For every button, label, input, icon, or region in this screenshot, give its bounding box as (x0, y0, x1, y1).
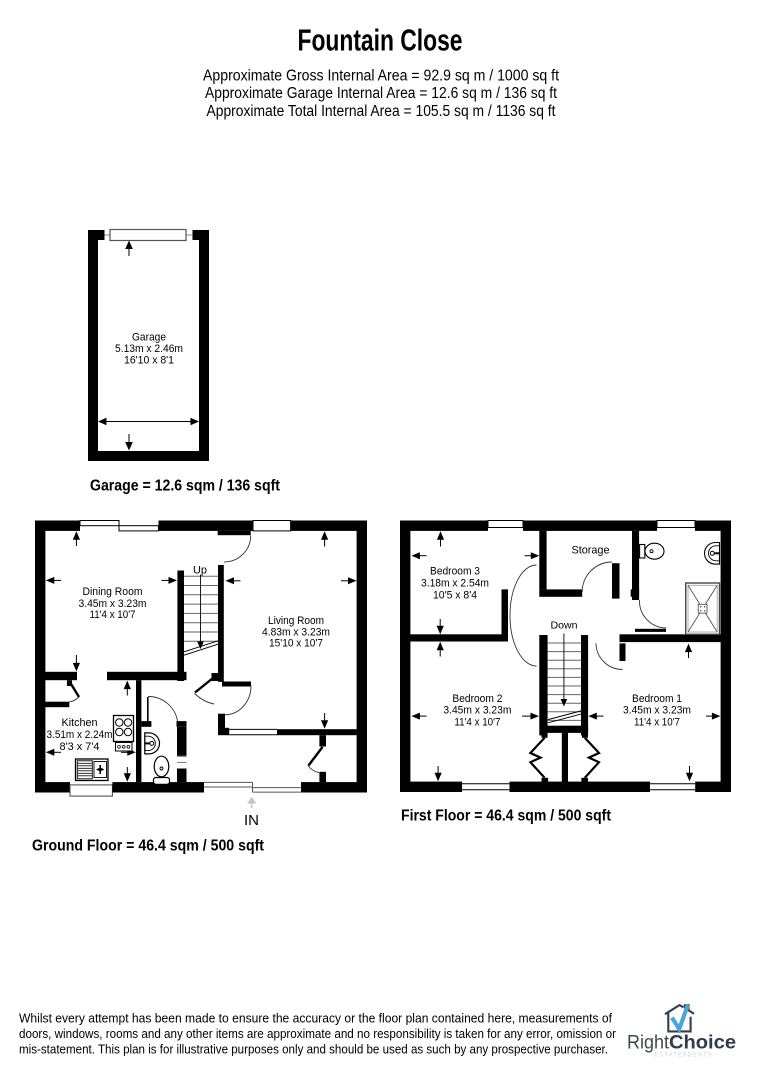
svg-text:Approximate Total Internal Are: Approximate Total Internal Area = 105.5 … (207, 103, 557, 120)
svg-text:IN: IN (244, 812, 259, 829)
svg-text:Kitchen: Kitchen (62, 717, 98, 729)
svg-text:Bedroom 3: Bedroom 3 (430, 566, 480, 578)
svg-text:3.45m x 3.23m: 3.45m x 3.23m (443, 705, 511, 717)
svg-text:Approximate Gross Internal Are: Approximate Gross Internal Area = 92.9 s… (203, 67, 560, 84)
svg-text:11'4 x 10'7: 11'4 x 10'7 (454, 716, 500, 728)
svg-text:Approximate Garage Internal Ar: Approximate Garage Internal Area = 12.6 … (205, 85, 558, 102)
svg-text:8'3 x 7'4: 8'3 x 7'4 (60, 741, 100, 753)
svg-text:Down: Down (551, 620, 578, 632)
svg-text:Dining Room: Dining Room (83, 586, 143, 598)
svg-text:First Floor = 46.4 sqm / 500 s: First Floor = 46.4 sqm / 500 sqft (401, 807, 611, 824)
svg-text:Ground Floor = 46.4 sqm / 500: Ground Floor = 46.4 sqm / 500 sqft (32, 837, 264, 854)
svg-text:Up: Up (193, 565, 207, 577)
svg-text:Whilst every attempt has been: Whilst every attempt has been made to en… (19, 1011, 612, 1026)
svg-text:Storage: Storage (572, 545, 610, 557)
svg-text:RightChoice: RightChoice (627, 1032, 736, 1054)
svg-text:10'5 x 8'4: 10'5 x 8'4 (433, 590, 477, 602)
svg-text:3.45m x 3.23m: 3.45m x 3.23m (623, 705, 691, 717)
svg-text:3.18m x 2.54m: 3.18m x 2.54m (421, 578, 489, 590)
svg-text:11'4 x 10'7: 11'4 x 10'7 (90, 609, 136, 621)
svg-text:11'4 x 10'7: 11'4 x 10'7 (634, 716, 680, 728)
svg-text:Fountain Close: Fountain Close (298, 23, 463, 58)
svg-text:15'10 x 10'7: 15'10 x 10'7 (269, 638, 323, 650)
svg-text:doors, windows, rooms and any: doors, windows, rooms and any other item… (19, 1026, 617, 1041)
svg-text:Living Room: Living Room (268, 615, 324, 627)
svg-text:Bedroom 2: Bedroom 2 (452, 693, 502, 705)
svg-text:3.51m x 2.24m: 3.51m x 2.24m (47, 729, 113, 741)
svg-text:16'10 x 8'1: 16'10 x 8'1 (124, 355, 174, 367)
svg-text:5.13m x 2.46m: 5.13m x 2.46m (115, 343, 183, 355)
svg-text:Garage = 12.6 sqm / 136 sqft: Garage = 12.6 sqm / 136 sqft (90, 478, 280, 495)
svg-text:mis-statement. This plan is fo: mis-statement. This plan is for illustra… (19, 1041, 608, 1056)
svg-text:Bedroom 1: Bedroom 1 (632, 693, 682, 705)
svg-text:Garage: Garage (132, 332, 166, 344)
svg-text:E S T A T E A G E N T S: E S T A T E A G E N T S (655, 1052, 713, 1059)
